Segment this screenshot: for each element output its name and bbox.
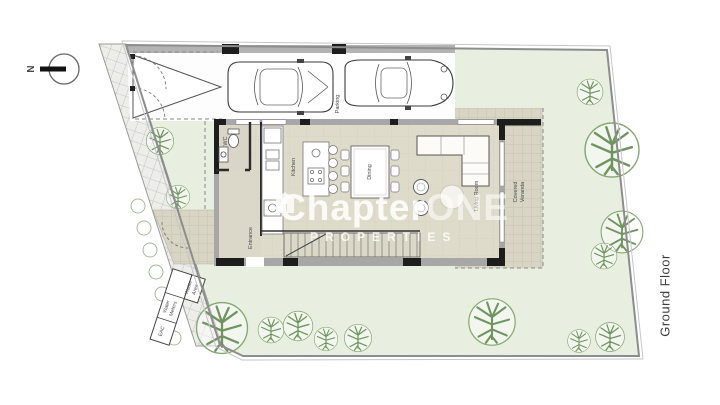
- house: [214, 119, 541, 267]
- window: [500, 192, 504, 242]
- floor-plan-drawing: Waste Area Water Meters EAC N Parking WC…: [0, 0, 720, 405]
- car-1: [228, 59, 333, 115]
- armchair-1: [414, 180, 429, 195]
- wall-pier: [216, 258, 244, 266]
- floor-title: Ground Floor: [658, 243, 673, 349]
- tree: [314, 327, 338, 351]
- car-2: [345, 56, 453, 110]
- north-label: N: [26, 65, 37, 72]
- staircase: [261, 231, 420, 257]
- covered-veranda-label: Veranda: [520, 181, 526, 202]
- tree: [585, 123, 639, 177]
- wc-label: WC: [223, 136, 229, 145]
- window: [236, 120, 260, 125]
- tree: [568, 330, 591, 353]
- parking-label: Parking: [335, 95, 341, 114]
- entrance-label: Entrance: [248, 227, 254, 249]
- wall-pier: [300, 119, 310, 125]
- tree: [577, 79, 603, 105]
- dining-label: Dining: [367, 164, 373, 180]
- wall-pier: [403, 258, 421, 266]
- covered-veranda-label: Covered: [513, 182, 519, 203]
- left-wall: [214, 122, 219, 174]
- window: [262, 120, 286, 125]
- coffee-rug: [440, 185, 464, 209]
- left-wall: [214, 174, 219, 263]
- tree: [258, 317, 284, 343]
- kitchen-counter: [262, 126, 283, 234]
- kitchen-island: [303, 142, 329, 196]
- living-room-label: Living Room: [474, 180, 480, 211]
- veranda-top-wall: [497, 119, 541, 126]
- wall-pier: [487, 258, 505, 266]
- tree: [283, 311, 313, 341]
- entrance-door-opening: [246, 257, 264, 267]
- wall-pier: [499, 125, 505, 140]
- tree: [469, 299, 515, 345]
- armchair-2: [414, 201, 429, 216]
- window: [458, 120, 494, 125]
- tree: [596, 323, 625, 352]
- kitchen-label: Kitchen: [291, 158, 297, 176]
- tree: [591, 243, 617, 269]
- window: [500, 142, 504, 186]
- fence-pier: [332, 44, 346, 54]
- floor-plan-page: Waste Area Water Meters EAC N Parking WC…: [0, 0, 720, 405]
- tree: [344, 324, 371, 351]
- entrance-hall-floor: [216, 170, 261, 263]
- wall-pier: [283, 258, 298, 266]
- wall-pier: [390, 119, 398, 125]
